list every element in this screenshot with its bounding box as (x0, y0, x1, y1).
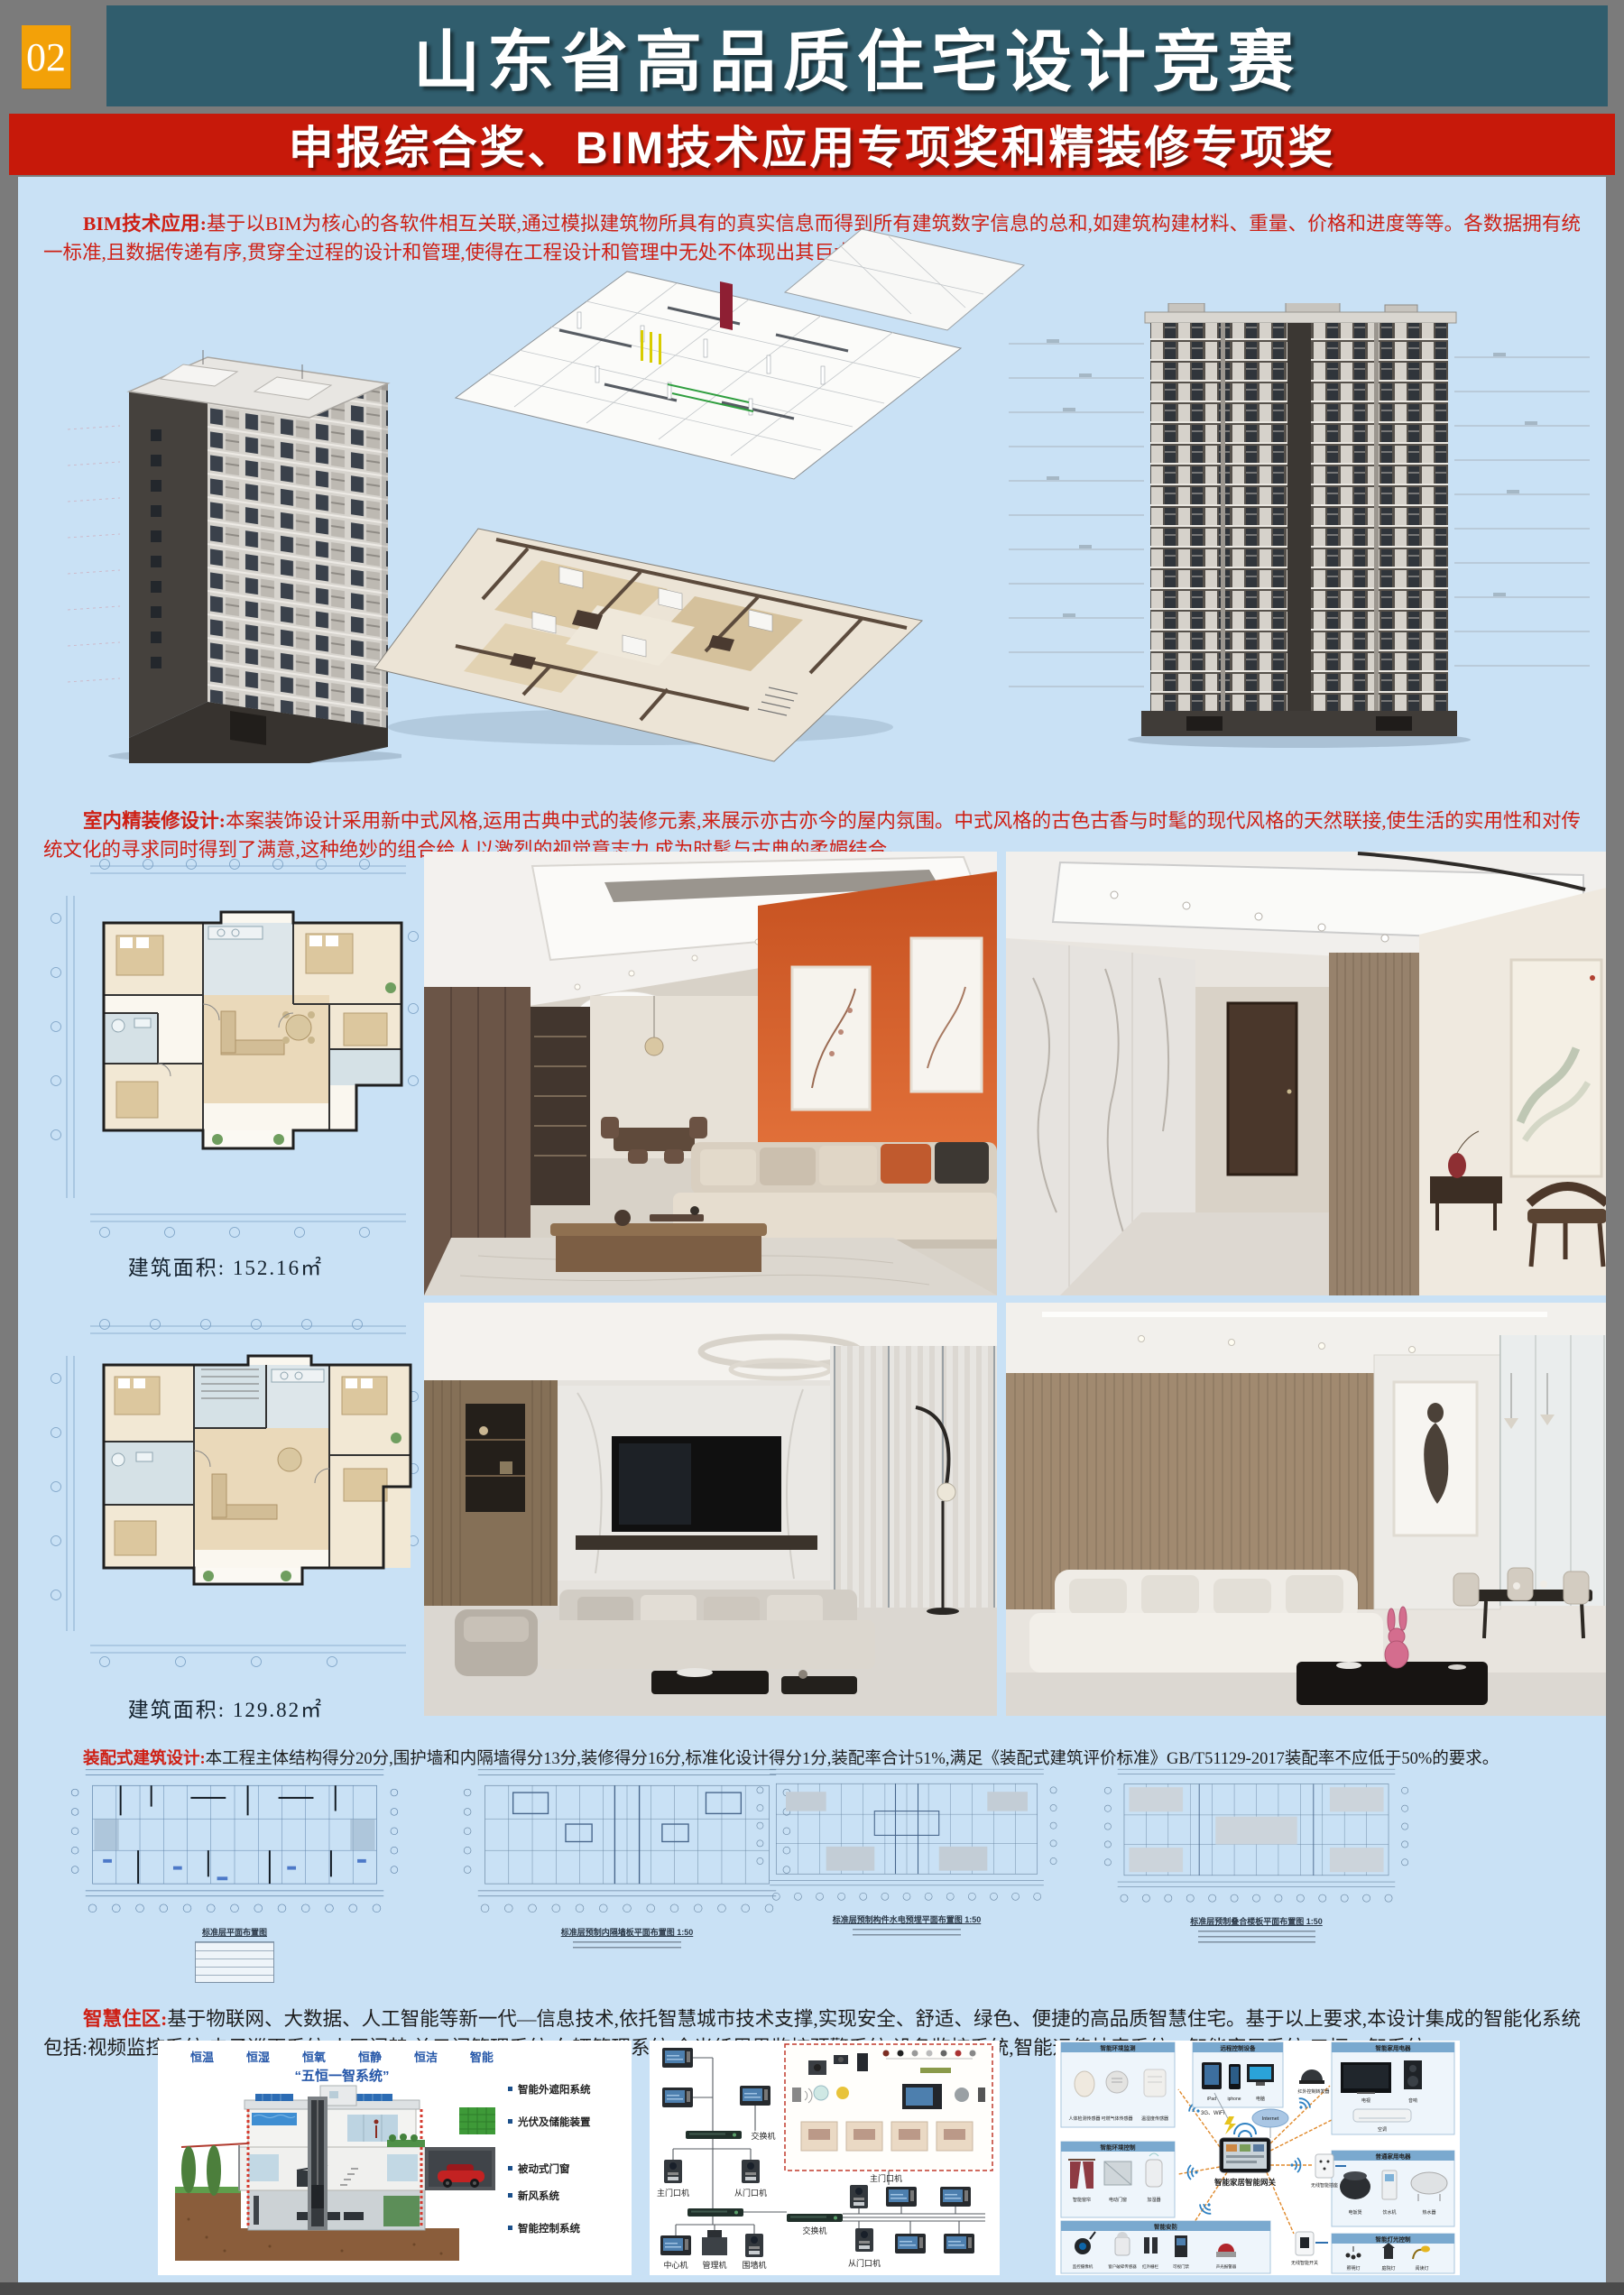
item-water-dispenser: 饮水机 (1382, 2209, 1396, 2216)
cad-plan-panel-1: 标准层平面布置图 (68, 1763, 401, 1983)
poster-title: 山东省高品质住宅设计竞赛 (106, 5, 1608, 106)
item-garden-light: 庭院灯 (1381, 2265, 1395, 2272)
item-aircon: 空调 (1378, 2126, 1387, 2133)
item-tv: 电视 (1361, 2097, 1370, 2104)
competition-poster: 02 山东省高品质住宅设计竞赛 申报综合奖、BIM技术应用专项奖和精装修专项奖 … (0, 0, 1624, 2295)
cad-plan-title-3: 标准层预制构件水电预埋平面布置图 1:50 (753, 1913, 1060, 1925)
group-normal-appliance-title: 普通家用电器 (1376, 2152, 1412, 2161)
cad-plan-panel-4: 标准层预制叠合楼板平面布置图 1:50 (1101, 1763, 1412, 1947)
bim-building-render-right (1001, 303, 1597, 754)
item-curtain: 智能窗帘 (1073, 2197, 1091, 2203)
callout-fresh-air: 新风系统 (508, 2189, 559, 2203)
item-camera: 监控摄像机 (1073, 2263, 1093, 2270)
intercom-system-card: 交换机 主门口机 从门口机 交换机 主门口机 中心机 管理机 围墙机 从门口机 (650, 2041, 1000, 2275)
item-video-door: 可视门禁 (1173, 2263, 1189, 2270)
poster-bottom-border (0, 2282, 1624, 2295)
interior-photo-dining (1006, 1303, 1606, 1716)
item-humidifier: 加湿器 (1147, 2197, 1160, 2203)
bim-exploded-floor-model (370, 222, 1038, 772)
tag-smart: 智能 (470, 2048, 494, 2065)
five-constant-title: “五恒一智系统” (190, 2066, 494, 2085)
cad-plan-title-1: 标准层平面布置图 (68, 1926, 401, 1938)
group-security-title: 智能安防 (1154, 2223, 1178, 2231)
relay-label: 红外控制转发器 (1297, 2088, 1329, 2095)
group-remote-control-title: 远程控制设备 (1221, 2044, 1257, 2052)
item-ipad: iPad (1207, 2097, 1216, 2102)
callout-smart-control: 智能控制系统 (508, 2221, 580, 2235)
intercom-main-door-label: 主门口机 (870, 2173, 902, 2183)
tag-constant-oxygen: 恒氧 (302, 2048, 326, 2065)
cad-plan-note (853, 1929, 961, 1936)
intercom-manager-unit-label: 管理机 (702, 2260, 726, 2270)
wireless-socket-label: 无线智能插座 (1311, 2182, 1338, 2189)
item-alarm: 声光报警器 (1216, 2263, 1237, 2270)
network-internet-label: Internet (1262, 2116, 1279, 2122)
house-cross-section (161, 2084, 513, 2272)
group-env-control-title: 智能环境控制 (1101, 2143, 1137, 2152)
interior-photo-living-orange (424, 852, 997, 1295)
five-constant-tags: 恒温 恒湿 恒氧 恒静 恒洁 智能 (190, 2048, 494, 2065)
cad-plan-panel-3: 标准层预制构件水电预埋平面布置图 1:50 (753, 1763, 1060, 1936)
intercom-sub-door-label: 从门口机 (734, 2188, 767, 2198)
group-lighting-title: 智能灯光控制 (1376, 2235, 1412, 2244)
item-speaker: 音响 (1408, 2097, 1417, 2104)
callout-sun-shading: 智能外遮阳系统 (508, 2082, 591, 2097)
item-gas-sensor: 可燃气体传感器 (1101, 2115, 1132, 2122)
cad-plan-note (573, 1941, 681, 1949)
award-banner: 申报综合奖、BIM技术应用专项奖和精装修专项奖 (9, 114, 1615, 175)
floor-plan-152-area: 建筑面积: 152.16㎡ (81, 1250, 370, 1281)
floor-plan-152 (45, 855, 424, 1239)
intercom-switch-label: 交换机 (751, 2131, 775, 2141)
intercom-center-unit-label: 中心机 (663, 2260, 687, 2270)
tag-constant-temp: 恒温 (190, 2048, 214, 2065)
item-pc: 电脑 (1256, 2096, 1265, 2102)
interior-photo-hallway (1006, 852, 1606, 1295)
tag-constant-clean: 恒洁 (414, 2048, 438, 2065)
item-reading-light: 阅读灯 (1415, 2265, 1428, 2272)
poster-body: BIM技术应用:基于以BIM为核心的各软件相互关联,通过模拟建筑物所具有的真实信… (18, 177, 1606, 2282)
cad-plan-panel-2: 标准层预制内隔墙板平面布置图 1:50 (460, 1763, 794, 1949)
interior-paragraph-label: 室内精装修设计: (83, 810, 226, 832)
cad-plan-note (1198, 1931, 1315, 1947)
smart-paragraph-label: 智慧住区: (83, 2008, 167, 2030)
callout-pv-storage: 光伏及储能装置 (508, 2116, 607, 2130)
page-number-badge: 02 (22, 25, 70, 88)
tag-constant-humidity: 恒湿 (246, 2048, 270, 2065)
item-water-heater: 热水器 (1422, 2209, 1435, 2216)
bim-building-render-left (68, 294, 401, 763)
floor-plan-129-area: 建筑面积: 129.82㎡ (81, 1692, 370, 1723)
group-smart-appliance-title: 智能家用电器 (1376, 2044, 1412, 2052)
floor-plan-129 (45, 1315, 424, 1669)
item-body-sensor: 人体检测传感器 (1068, 2115, 1100, 2122)
item-motor-window: 电动门窗 (1109, 2197, 1127, 2203)
item-temp-sensor: 温湿度传感器 (1141, 2115, 1168, 2122)
network-3g-wifi-label: 3G、WiFi (1201, 2111, 1224, 2116)
cad-plan-title-4: 标准层预制叠合楼板平面布置图 1:50 (1101, 1915, 1412, 1927)
smart-home-system-card: 智能环境监测 人体检测传感器 可燃气体传感器 温湿度传感器 远程控制设备 (1056, 2041, 1460, 2275)
interior-photo-living-tv (424, 1303, 997, 1716)
gateway-label: 智能家居智能网关 (1213, 2178, 1277, 2187)
intercom-sub-door-label: 从门口机 (848, 2258, 881, 2268)
cad-plan-title-2: 标准层预制内隔墙板平面布置图 1:50 (460, 1926, 794, 1938)
intercom-wall-unit-label: 围墙机 (742, 2260, 766, 2270)
bim-paragraph-label: BIM技术应用: (83, 213, 207, 235)
cad-plan-legend (195, 1941, 274, 1983)
callout-passive-windows: 被动式门窗 (508, 2161, 570, 2176)
intercom-main-door-label: 主门口机 (657, 2188, 689, 2198)
item-ir-fence: 红外栅栏 (1142, 2263, 1158, 2270)
item-ceiling-light: 照明灯 (1346, 2265, 1360, 2272)
wireless-switch-label: 无线智能开关 (1291, 2260, 1318, 2266)
group-env-monitor-title: 智能环境监测 (1101, 2044, 1137, 2052)
item-rice-cooker: 电饭煲 (1348, 2209, 1361, 2216)
tag-constant-quiet: 恒静 (358, 2048, 382, 2065)
item-iphone: iphone (1227, 2097, 1241, 2102)
five-constant-system-card: 恒温 恒湿 恒氧 恒静 恒洁 智能 “五恒一智系统” (158, 2041, 632, 2275)
item-window-sensor: 窗户破碎传感器 (1108, 2263, 1137, 2270)
intercom-switch-label: 交换机 (802, 2226, 826, 2235)
